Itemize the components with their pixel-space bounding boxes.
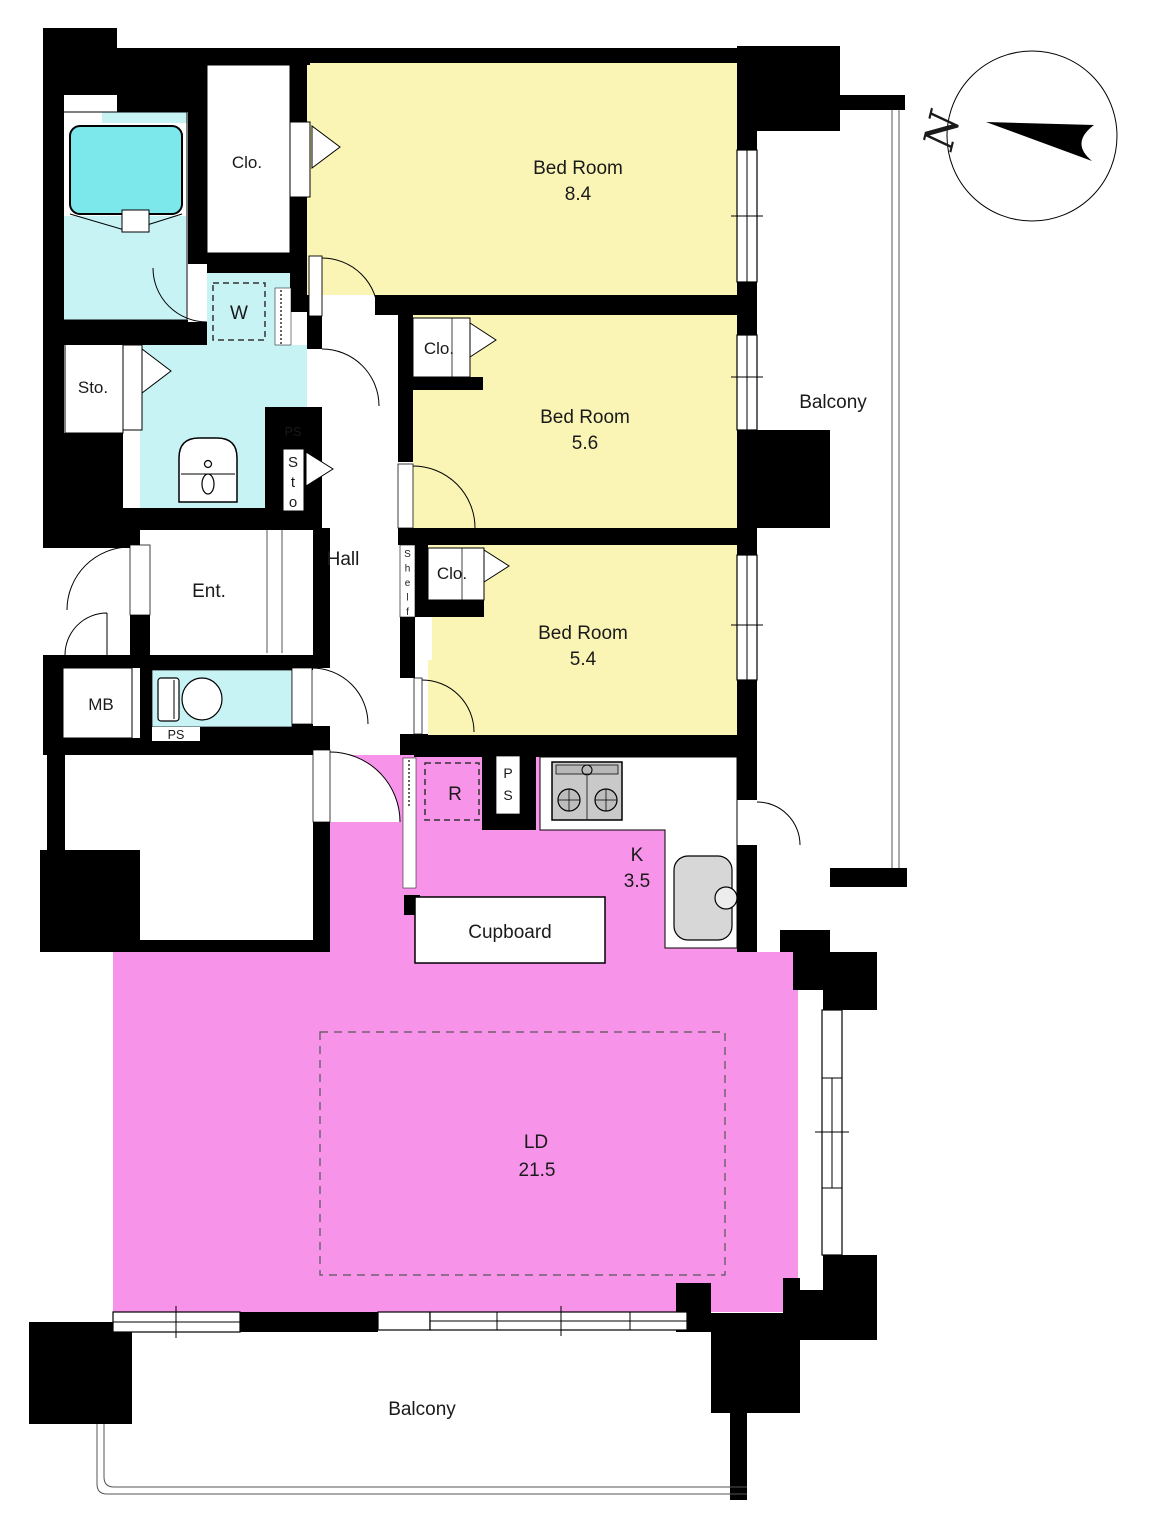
closet-main-door-leaf bbox=[290, 122, 310, 197]
bedroom-main-label: Bed Room bbox=[533, 158, 623, 179]
bedroom-floors bbox=[307, 63, 737, 737]
bedroom-main-area: 8.4 bbox=[565, 184, 592, 205]
entrance-door-arc bbox=[67, 547, 130, 610]
pipe-space-hall-label: PS bbox=[285, 425, 302, 439]
balcony-south-rail bbox=[97, 1424, 747, 1494]
refrigerator-label: R bbox=[448, 784, 462, 805]
window-living-east-frame bbox=[815, 1078, 849, 1188]
entrance-label: Ent. bbox=[192, 581, 226, 602]
compass: N bbox=[913, 51, 1117, 221]
living-dining-area: 21.5 bbox=[519, 1160, 556, 1181]
closet-main-label: Clo. bbox=[232, 153, 262, 172]
bathroom-door-opening bbox=[188, 264, 207, 322]
washer-nook-slide-pocket bbox=[275, 288, 291, 345]
kitchen-balcony-door-arc bbox=[757, 802, 800, 845]
floor-plan-canvas: N Clo. Bed Room 8.4 Balcony W Sto. PS St… bbox=[0, 0, 1152, 1525]
window-living-south-cell bbox=[378, 1312, 430, 1330]
living-dining-floor bbox=[113, 952, 798, 1312]
bedroom-small-label: Bed Room bbox=[538, 623, 628, 644]
bedroom-small-door-leaf bbox=[414, 678, 422, 734]
bath-faucet-box bbox=[122, 210, 149, 232]
living-dining-label: LD bbox=[524, 1132, 548, 1153]
bathtub bbox=[70, 126, 182, 214]
closet-small-label: Clo. bbox=[437, 564, 467, 583]
washroom-door-arc bbox=[322, 349, 379, 406]
bedroom-main-door-leaf bbox=[309, 256, 322, 316]
bedroom-small-area: 5.4 bbox=[570, 649, 597, 670]
storage-hall-door-leaf bbox=[123, 345, 142, 430]
kitchen-balcony-door-opening bbox=[737, 800, 757, 845]
balcony-east-label: Balcony bbox=[799, 392, 867, 413]
entrance-step-lines bbox=[267, 530, 282, 653]
bedroom-mid-label: Bed Room bbox=[540, 407, 630, 428]
hall-label: Hall bbox=[327, 549, 360, 570]
bedroom-main-floor bbox=[307, 63, 737, 295]
washroom-door-opening bbox=[307, 349, 322, 407]
floor-plan: N Clo. Bed Room 8.4 Balcony W Sto. PS St… bbox=[0, 0, 1152, 1525]
meter-box-label: MB bbox=[88, 695, 114, 714]
washer-label: W bbox=[230, 303, 248, 324]
service-room-door-leaf bbox=[313, 750, 330, 822]
cupboard-label: Cupboard bbox=[468, 922, 551, 943]
washbasin-faucet bbox=[202, 474, 214, 494]
toilet-door-leaf bbox=[292, 668, 312, 724]
kitchen-area: 3.5 bbox=[624, 871, 650, 892]
closet-mid-label: Clo. bbox=[424, 339, 454, 358]
storage-hall-label: Sto. bbox=[78, 378, 108, 397]
kitchen-faucet bbox=[715, 887, 737, 909]
bedroom-mid-door-leaf bbox=[398, 464, 413, 528]
kitchen-label: K bbox=[631, 845, 644, 866]
toilet-tank bbox=[158, 678, 179, 721]
toilet-bowl bbox=[182, 678, 222, 720]
balcony-south-label: Balcony bbox=[388, 1399, 456, 1420]
toilet-door-arc bbox=[312, 668, 368, 724]
bathroom-top-strip bbox=[102, 112, 188, 123]
bedroom-small-wall-notch bbox=[415, 617, 432, 660]
entrance-door-leaf bbox=[130, 545, 150, 615]
bedroom-mid-area: 5.6 bbox=[572, 433, 598, 454]
balcony-east-rail bbox=[892, 110, 899, 868]
stove bbox=[552, 762, 622, 820]
pipe-space-toilet-label: PS bbox=[168, 728, 185, 742]
meter-box-door-arc bbox=[65, 613, 107, 655]
